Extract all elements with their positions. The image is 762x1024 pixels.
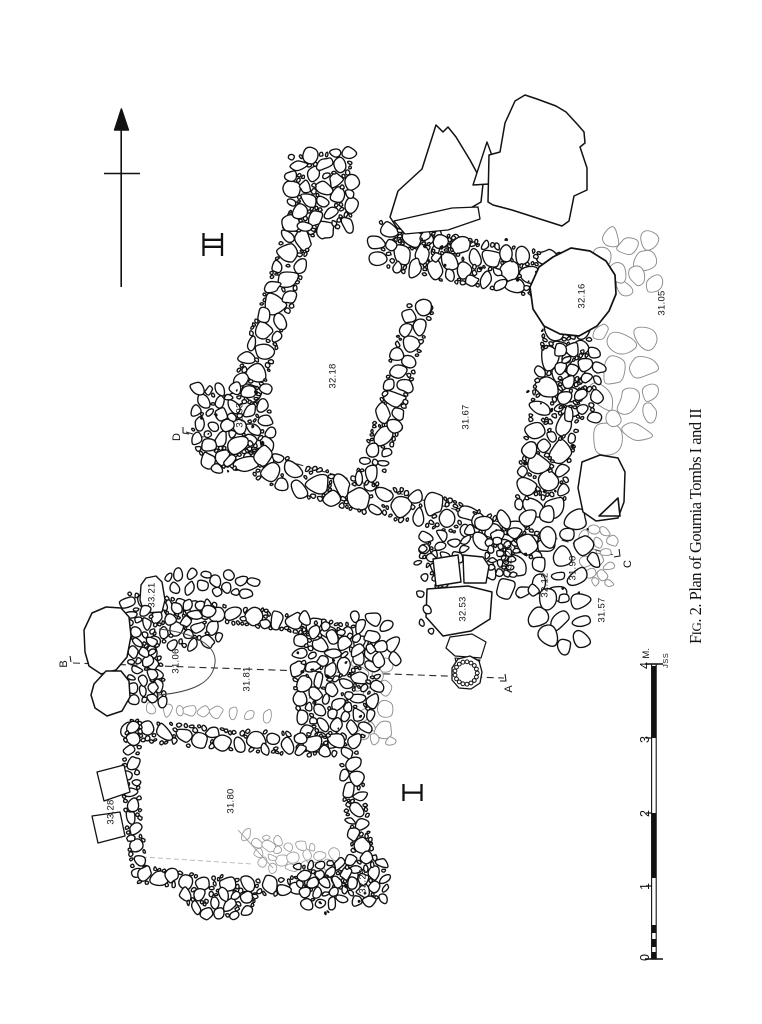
svg-text:A: A [503, 685, 515, 693]
svg-text:D: D [171, 433, 183, 441]
svg-text:4 M.: 4 M. [638, 648, 652, 669]
svg-text:2: 2 [638, 810, 652, 817]
svg-text:0: 0 [638, 954, 652, 961]
svg-text:32.53: 32.53 [457, 596, 468, 621]
svg-text:31.06: 31.06 [170, 648, 181, 673]
svg-text:31.57: 31.57 [596, 597, 607, 622]
svg-text:32.18: 32.18 [327, 363, 338, 388]
svg-text:31.81: 31.81 [241, 666, 252, 691]
svg-text:32.93: 32.93 [234, 402, 245, 427]
svg-text:C: C [622, 560, 634, 568]
svg-text:32.16: 32.16 [576, 283, 587, 308]
svg-text:33.28: 33.28 [105, 799, 116, 824]
svg-text:31.67: 31.67 [460, 404, 471, 429]
svg-text:FIG. 2. Plan of Gournia Tombs: FIG. 2. Plan of Gournia Tombs I and II [686, 409, 705, 644]
svg-text:32.29: 32.29 [357, 868, 368, 893]
svg-text:1: 1 [638, 883, 652, 890]
svg-text:31.90: 31.90 [567, 555, 578, 580]
svg-text:32.25: 32.25 [503, 544, 514, 569]
svg-text:32.12: 32.12 [539, 572, 550, 597]
svg-text:JSS: JSS [661, 653, 670, 668]
svg-text:33.21: 33.21 [146, 582, 157, 607]
svg-text:31.05: 31.05 [656, 290, 667, 315]
svg-text:B: B [58, 660, 70, 667]
svg-text:3: 3 [638, 736, 652, 743]
svg-text:31.80: 31.80 [225, 788, 236, 813]
